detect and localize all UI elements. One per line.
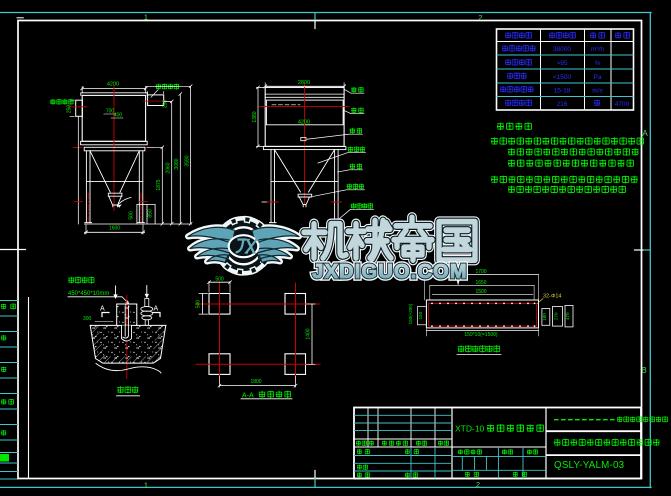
svg-text:150: 150 xyxy=(418,311,423,319)
svg-text:1700: 1700 xyxy=(475,269,486,275)
svg-text:500: 500 xyxy=(215,277,224,283)
svg-text:1650: 1650 xyxy=(475,280,486,286)
svg-text:500: 500 xyxy=(196,300,202,309)
svg-text:180: 180 xyxy=(542,313,547,321)
svg-text:%: % xyxy=(595,60,601,67)
svg-text:300: 300 xyxy=(83,316,92,322)
svg-text:XTD-10: XTD-10 xyxy=(455,424,485,434)
svg-text:1600: 1600 xyxy=(109,226,120,232)
svg-text:500: 500 xyxy=(128,211,134,220)
svg-text:216: 216 xyxy=(557,101,568,108)
svg-text:A: A xyxy=(642,129,648,138)
svg-text:2: 2 xyxy=(478,13,482,22)
svg-text:A: A xyxy=(154,306,159,313)
svg-text:m/s: m/s xyxy=(592,88,603,95)
svg-text:1800: 1800 xyxy=(250,379,261,385)
svg-text:1400: 1400 xyxy=(305,328,311,339)
svg-text:2060: 2060 xyxy=(165,162,171,173)
svg-text:150*10(=1500): 150*10(=1500) xyxy=(464,332,498,338)
svg-text:3590: 3590 xyxy=(184,155,190,166)
svg-text:250: 250 xyxy=(163,100,169,109)
svg-text:1: 1 xyxy=(144,481,148,490)
svg-text:1875: 1875 xyxy=(156,179,162,190)
svg-text:A: A xyxy=(100,306,105,313)
svg-text:32-Φ14: 32-Φ14 xyxy=(543,294,561,300)
svg-text:850: 850 xyxy=(148,209,154,218)
svg-text:15-18: 15-18 xyxy=(554,88,571,95)
svg-text:QSLY-YALM-03: QSLY-YALM-03 xyxy=(554,460,625,471)
svg-text:2800: 2800 xyxy=(298,80,310,86)
svg-text:450*450*10mm: 450*450*10mm xyxy=(68,291,109,297)
svg-text:38000: 38000 xyxy=(553,46,571,53)
svg-text:>95: >95 xyxy=(556,60,567,67)
svg-text:2: 2 xyxy=(476,480,480,489)
svg-text:JXDIGUO.COM: JXDIGUO.COM xyxy=(312,261,467,283)
svg-text:470: 470 xyxy=(565,312,570,320)
svg-text:3080: 3080 xyxy=(174,158,180,169)
svg-text:400: 400 xyxy=(114,113,123,119)
svg-text:4200: 4200 xyxy=(107,82,119,88)
svg-text:Pa: Pa xyxy=(594,74,602,81)
svg-text:4200: 4200 xyxy=(298,120,310,126)
svg-text:B: B xyxy=(641,366,646,375)
svg-text:4700: 4700 xyxy=(615,101,630,108)
svg-text:270: 270 xyxy=(554,312,559,320)
svg-text:1380: 1380 xyxy=(252,111,258,122)
svg-text:<1500: <1500 xyxy=(553,74,572,81)
svg-text:150(+200): 150(+200) xyxy=(408,303,413,324)
svg-text:1500: 1500 xyxy=(475,289,486,295)
svg-text:250: 250 xyxy=(67,105,73,114)
svg-text:m³/h: m³/h xyxy=(591,46,604,53)
svg-text:1: 1 xyxy=(144,13,148,22)
